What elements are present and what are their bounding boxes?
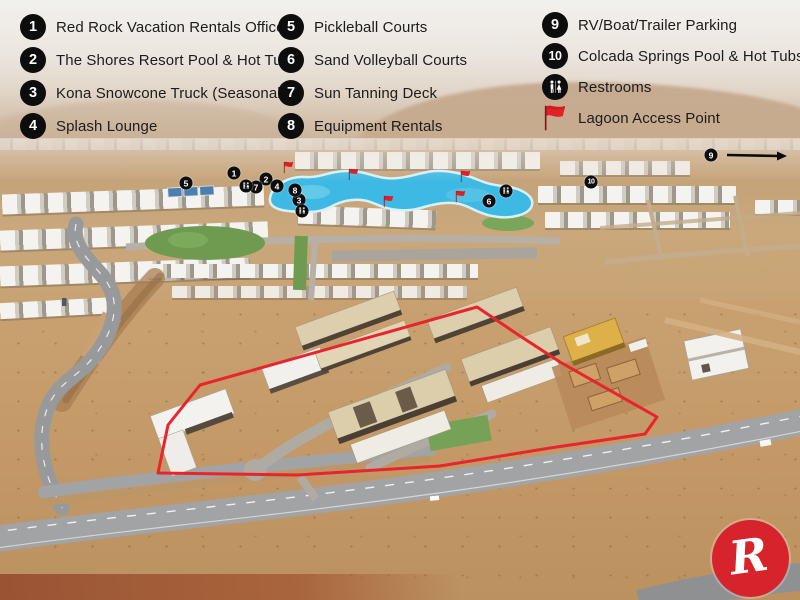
- legend-item-10: 10Colcada Springs Pool & Hot Tubs: [542, 43, 800, 69]
- map-marker-4: 4: [271, 180, 284, 193]
- map-restrooms-icon: [500, 185, 513, 198]
- legend-number-badge-3: 3: [20, 80, 46, 106]
- map-marker-6: 6: [483, 195, 496, 208]
- legend-label: Kona Snowcone Truck (Seasonal): [56, 85, 286, 102]
- legend-number-badge-9: 9: [542, 12, 568, 38]
- lagoon-access-flag-icon: [383, 195, 394, 208]
- legend-number-badge-4: 4: [20, 113, 46, 139]
- legend-item-7: 7Sun Tanning Deck: [278, 80, 467, 106]
- legend-label: RV/Boat/Trailer Parking: [578, 17, 737, 34]
- legend-number-badge-10: 10: [542, 43, 568, 69]
- legend-item-1: 1Red Rock Vacation Rentals Office: [20, 14, 290, 40]
- legend-column-2: 5Pickleball Courts6Sand Volleyball Court…: [278, 14, 467, 146]
- legend-number-badge-2: 2: [20, 47, 46, 73]
- legend-label: The Shores Resort Pool & Hot Tub: [56, 52, 290, 69]
- legend-item-8: 8Equipment Rentals: [278, 113, 467, 139]
- legend-label: Equipment Rentals: [314, 118, 442, 135]
- legend-label: Red Rock Vacation Rentals Office: [56, 19, 285, 36]
- flag-icon: [542, 105, 568, 131]
- legend-column-1: 1Red Rock Vacation Rentals Office2The Sh…: [20, 14, 290, 146]
- legend-number-badge-7: 7: [278, 80, 304, 106]
- legend-item-2: 2The Shores Resort Pool & Hot Tub: [20, 47, 290, 73]
- map-restrooms-icon: [240, 180, 253, 193]
- map-marker-8: 8: [289, 184, 302, 197]
- legend-number-badge-8: 8: [278, 113, 304, 139]
- legend-column-3: 9RV/Boat/Trailer Parking10Colcada Spring…: [542, 12, 800, 136]
- legend-label: Sun Tanning Deck: [314, 85, 437, 102]
- lagoon-access-flag-icon: [460, 170, 471, 183]
- legend-item-3: 3Kona Snowcone Truck (Seasonal): [20, 80, 290, 106]
- logo-letter: R: [726, 526, 771, 585]
- legend-item-flag-icon: Lagoon Access Point: [542, 105, 800, 131]
- red-rock-logo: R: [712, 520, 789, 597]
- legend-item-restrooms-icon: Restrooms: [542, 74, 800, 100]
- legend-number-badge-1: 1: [20, 14, 46, 40]
- map-marker-5: 5: [180, 177, 193, 190]
- legend-label: Pickleball Courts: [314, 19, 427, 36]
- map-marker-10: 10: [585, 176, 598, 189]
- legend-item-4: 4Splash Lounge: [20, 113, 290, 139]
- lagoon-access-flag-icon: [348, 168, 359, 181]
- legend-item-9: 9RV/Boat/Trailer Parking: [542, 12, 800, 38]
- legend-label: Sand Volleyball Courts: [314, 52, 467, 69]
- legend-number-badge-6: 6: [278, 47, 304, 73]
- map-restrooms-icon: [296, 205, 309, 218]
- legend-number-badge-5: 5: [278, 14, 304, 40]
- legend-item-6: 6Sand Volleyball Courts: [278, 47, 467, 73]
- lagoon-access-flag-icon: [455, 190, 466, 203]
- lagoon-access-flag-icon: [283, 161, 294, 174]
- legend-label: Splash Lounge: [56, 118, 157, 135]
- legend-label: Restrooms: [578, 79, 651, 96]
- map-marker-9: 9: [705, 149, 718, 162]
- legend-label: Lagoon Access Point: [578, 110, 720, 127]
- annotated-resort-map: 12345678910 1Red Rock Vacation Rentals O…: [0, 0, 800, 600]
- legend-label: Colcada Springs Pool & Hot Tubs: [578, 48, 800, 65]
- restrooms-icon: [542, 74, 568, 100]
- map-marker-1: 1: [228, 167, 241, 180]
- legend-item-5: 5Pickleball Courts: [278, 14, 467, 40]
